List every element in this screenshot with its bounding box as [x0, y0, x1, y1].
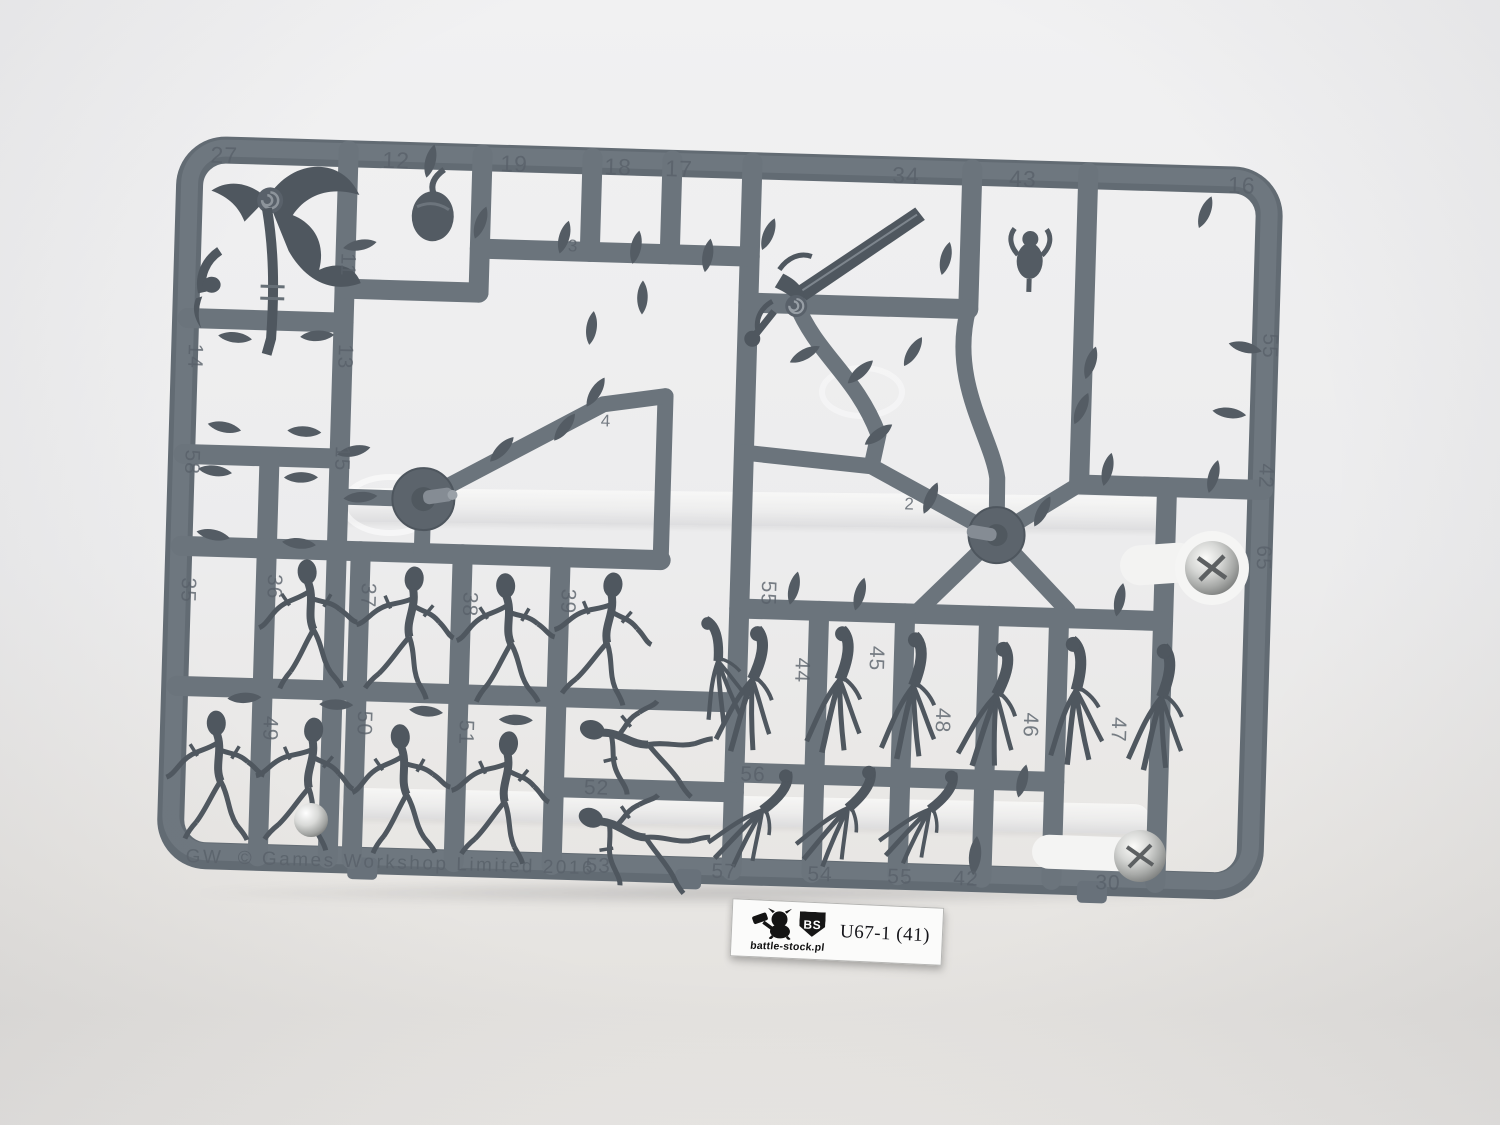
leaf-bit-part	[409, 704, 444, 718]
part-number: 37	[356, 582, 380, 608]
part-number: 2	[904, 494, 915, 513]
part-number: 65	[1252, 545, 1276, 571]
mascot-icon	[751, 906, 798, 940]
part-number: 51	[454, 719, 478, 745]
part-number: 54	[807, 863, 833, 887]
part-number: 46	[1019, 712, 1043, 738]
part-number: 36	[262, 574, 286, 600]
part-number: 27	[210, 142, 238, 169]
part-number: 50	[352, 710, 376, 736]
part-number: 4	[600, 411, 611, 430]
part-number: 34	[892, 162, 920, 189]
part-number: 3	[568, 236, 579, 255]
claw-arm-part	[715, 623, 784, 756]
part-number: 57	[711, 860, 737, 884]
part-number: 42	[1254, 463, 1278, 489]
part-number: 38	[458, 591, 482, 617]
leaf-bit-part	[937, 241, 955, 277]
product-code: U67-1 (41)	[836, 921, 935, 947]
product-label: BS battle-stock.pl U67-1 (41)	[730, 898, 944, 966]
part-number: 44	[790, 657, 814, 683]
part-number: 39	[556, 588, 580, 614]
shop-logo: BS battle-stock.pl	[739, 905, 837, 954]
leaf-bit-part	[284, 472, 318, 483]
sprue: 27 12 19 18 17 34 43 16 14 11 13 58 15 3…	[158, 136, 1286, 927]
leaf-bit-part	[1194, 194, 1216, 229]
part-number: 56	[740, 763, 766, 787]
logo-initials: BS	[803, 917, 821, 932]
part-number: 48	[931, 708, 955, 734]
part-number: 12	[382, 147, 410, 174]
part-number: 19	[500, 150, 528, 177]
part-number: 43	[1009, 165, 1037, 192]
leaf-bit-part	[207, 419, 242, 436]
part-number: 42	[953, 867, 979, 891]
part-number: 13	[333, 344, 357, 370]
part-number: 47	[1106, 717, 1130, 743]
shop-website: battle-stock.pl	[749, 939, 825, 953]
part-number: 55	[756, 580, 780, 606]
leaf-bit-part	[218, 330, 253, 344]
photo-scene: 27 12 19 18 17 34 43 16 14 11 13 58 15 3…	[0, 0, 1500, 1125]
logo-shield: BS	[799, 911, 826, 937]
metal-ball	[294, 803, 328, 837]
leaf-bit-part	[637, 280, 649, 314]
leaf-bit-part	[900, 334, 927, 368]
part-number: 55	[1258, 333, 1282, 359]
part-number: 15	[330, 446, 354, 472]
part-number: 16	[1228, 172, 1256, 199]
part-number: 58	[180, 449, 204, 475]
leaf-bit-part	[1212, 405, 1247, 420]
part-number: 30	[1095, 871, 1121, 895]
part-number: 45	[864, 646, 888, 672]
leaf-bit-part	[584, 310, 599, 345]
maker-mark: GW	[185, 846, 223, 868]
part-number: 11	[336, 252, 360, 276]
part-number: 17	[665, 155, 693, 182]
part-number: 52	[584, 776, 610, 800]
part-number: 55	[887, 865, 913, 889]
leaf-bit-part	[499, 714, 533, 726]
part-number: 49	[258, 716, 282, 742]
part-number: 18	[604, 153, 632, 180]
part-number: 35	[176, 577, 200, 603]
head-part	[411, 169, 455, 242]
part-number: 14	[183, 343, 207, 369]
bird-part	[1009, 228, 1050, 292]
leaf-bit-part	[287, 425, 322, 438]
injection-hub-left	[391, 467, 458, 531]
